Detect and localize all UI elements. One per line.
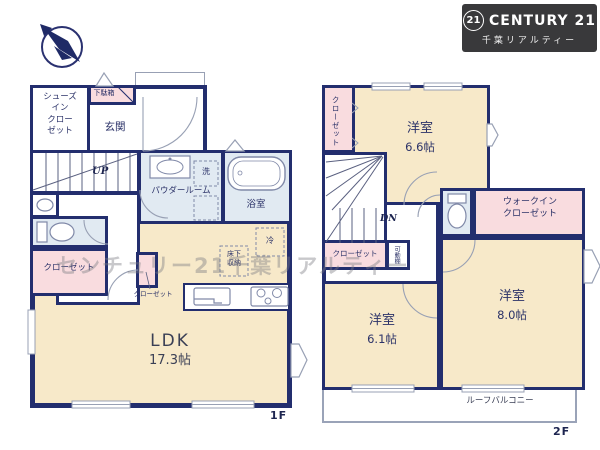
label-bedroom-61-size: 6.1帖	[352, 332, 412, 348]
label-bedroom-80-size: 8.0帖	[482, 308, 542, 324]
room-toilet-1f	[30, 216, 108, 248]
f2-stairs	[322, 152, 387, 247]
label-laundry: 洗	[196, 167, 216, 178]
label-hall-closet: クローゼット	[130, 290, 176, 299]
label-roof-balcony: ルーフバルコニー	[440, 396, 560, 407]
label-bedroom-80: 洋室	[482, 288, 542, 306]
room-bath	[222, 150, 292, 224]
label-floor-2f: 2F	[553, 425, 570, 440]
label-floor-1f: 1F	[270, 409, 287, 424]
label-stairs-up: UP	[92, 165, 108, 179]
f1-stairs	[30, 150, 140, 194]
label-shoe-cabinet: 下駄箱	[89, 89, 119, 98]
label-ldk: LDK	[130, 330, 210, 353]
label-bathroom: 浴室	[236, 199, 276, 212]
label-bedroom-66: 洋室	[390, 120, 450, 138]
label-entrance: 玄関	[96, 120, 134, 134]
label-powder-room: パウダールーム	[140, 186, 222, 197]
room-toilet-2f	[440, 188, 473, 237]
kitchen-counter	[183, 283, 290, 311]
label-shoes-closet: シューズ イン クロー ゼット	[34, 92, 86, 138]
label-closet-2f-top: クローゼット	[330, 93, 340, 149]
label-stairs-down: DN	[380, 213, 397, 226]
label-walk-in-closet: ウォークイン クローゼット	[482, 196, 578, 220]
label-fridge: 冷	[258, 236, 282, 247]
label-bedroom-61: 洋室	[352, 312, 412, 330]
c21-seal-icon: 21	[463, 10, 484, 31]
company-name: 千葉リアルティー	[482, 33, 577, 46]
century21-logo: 21 CENTURY 21 千葉リアルティー	[462, 4, 597, 52]
brand-name: CENTURY 21	[489, 13, 596, 29]
floor-plan-canvas: 21 CENTURY 21 千葉リアルティー センチュリー21千葉リアルティー	[0, 0, 600, 450]
watermark-text: センチュリー21千葉リアルティー	[56, 250, 410, 280]
label-bedroom-66-size: 6.6帖	[390, 140, 450, 156]
label-ldk-size: 17.3帖	[130, 352, 210, 370]
north-compass-icon	[32, 16, 90, 74]
